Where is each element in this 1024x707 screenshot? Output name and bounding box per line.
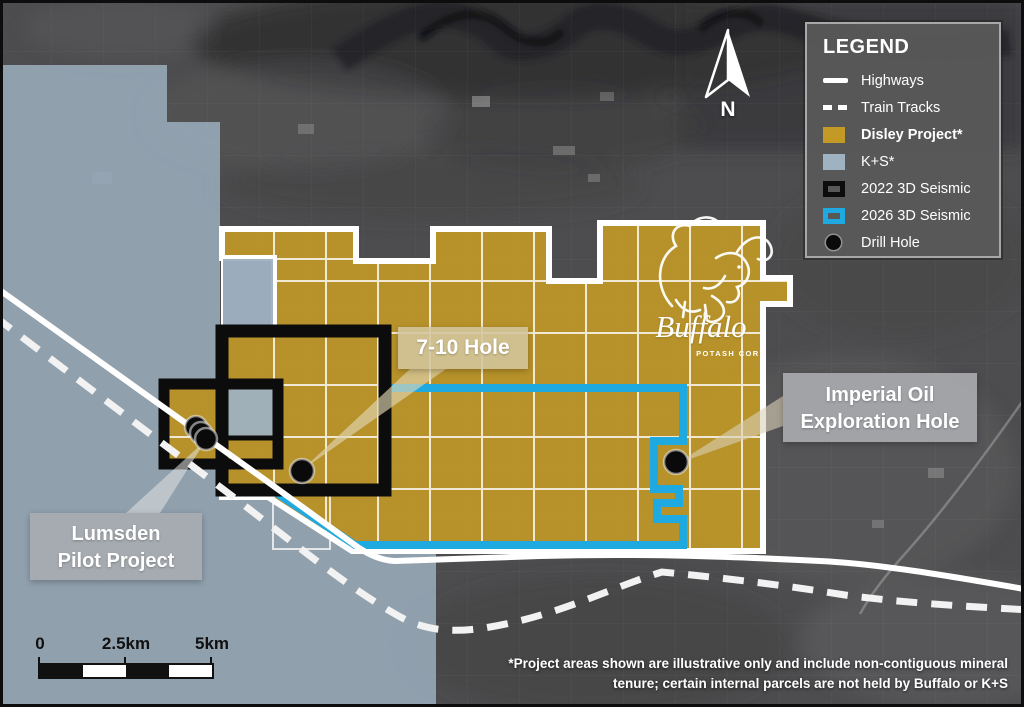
disley-fill-swatch bbox=[823, 127, 845, 143]
drill-hole-cluster-3 bbox=[195, 428, 217, 450]
callout-lumsden-line1: Lumsden bbox=[30, 521, 202, 548]
legend-item-label: Highways bbox=[861, 73, 924, 89]
footnote: *Project areas shown are illustrative on… bbox=[408, 654, 1008, 695]
legend-item-disley-project: Disley Project* bbox=[807, 121, 999, 148]
scale-label-mid: 2.5km bbox=[102, 634, 150, 654]
scale-segment bbox=[83, 665, 126, 677]
callout-7-10-hole: 7-10 Hole bbox=[398, 327, 528, 369]
callout-imperial-line1: Imperial Oil bbox=[783, 382, 977, 409]
legend-item-label: Train Tracks bbox=[861, 100, 940, 116]
train-tracks-swatch bbox=[823, 105, 850, 110]
scale-segment bbox=[40, 665, 83, 677]
legend-item-train-tracks: Train Tracks bbox=[807, 94, 999, 121]
drill-hole-7-10 bbox=[290, 459, 314, 483]
scale-label-start: 0 bbox=[35, 634, 44, 654]
scale-segment bbox=[169, 665, 212, 677]
scale-segment bbox=[126, 665, 169, 677]
ks-parcel-gap bbox=[222, 258, 274, 333]
legend-item-label: K+S* bbox=[861, 154, 894, 170]
legend-item-ks: K+S* bbox=[807, 148, 999, 175]
buffalo-logo-name: Buffalo bbox=[630, 309, 772, 345]
callout-lumsden: Lumsden Pilot Project bbox=[30, 513, 202, 580]
drill-hole-swatch bbox=[826, 235, 841, 250]
legend-panel: LEGEND Highways Train Tracks Disley Proj… bbox=[805, 22, 1001, 258]
legend-item-label: 2026 3D Seismic bbox=[861, 208, 971, 224]
footnote-line1: *Project areas shown are illustrative on… bbox=[408, 654, 1008, 674]
drill-hole-imperial bbox=[664, 450, 688, 474]
legend-item-label: Drill Hole bbox=[861, 235, 920, 251]
map-canvas: LEGEND Highways Train Tracks Disley Proj… bbox=[0, 0, 1024, 707]
callout-lumsden-line2: Pilot Project bbox=[30, 548, 202, 575]
ks-fill-swatch bbox=[823, 154, 845, 170]
legend-item-label: 2022 3D Seismic bbox=[861, 181, 971, 197]
legend-title: LEGEND bbox=[823, 36, 999, 59]
legend-item-2022-seismic: 2022 3D Seismic bbox=[807, 175, 999, 202]
scale-label-end: 5km bbox=[195, 634, 229, 654]
legend-item-drill-hole: Drill Hole bbox=[807, 229, 999, 256]
seismic-2026-swatch bbox=[823, 208, 845, 224]
scale-bar-segments bbox=[38, 663, 214, 679]
legend-item-2026-seismic: 2026 3D Seismic bbox=[807, 202, 999, 229]
footnote-line2: tenure; certain internal parcels are not… bbox=[408, 674, 1008, 694]
scale-bar: 0 2.5km 5km bbox=[28, 634, 224, 684]
highway-line-swatch bbox=[823, 78, 848, 83]
legend-item-highways: Highways bbox=[807, 67, 999, 94]
callout-imperial-line2: Exploration Hole bbox=[783, 409, 977, 436]
north-label: N bbox=[706, 98, 750, 122]
legend-item-label: Disley Project* bbox=[861, 127, 963, 143]
buffalo-logo-subtitle: POTASH CORP bbox=[648, 349, 766, 358]
seismic-2022-swatch bbox=[823, 181, 845, 197]
callout-imperial-oil: Imperial Oil Exploration Hole bbox=[783, 373, 977, 442]
ks-parcel-excluded bbox=[225, 387, 277, 438]
